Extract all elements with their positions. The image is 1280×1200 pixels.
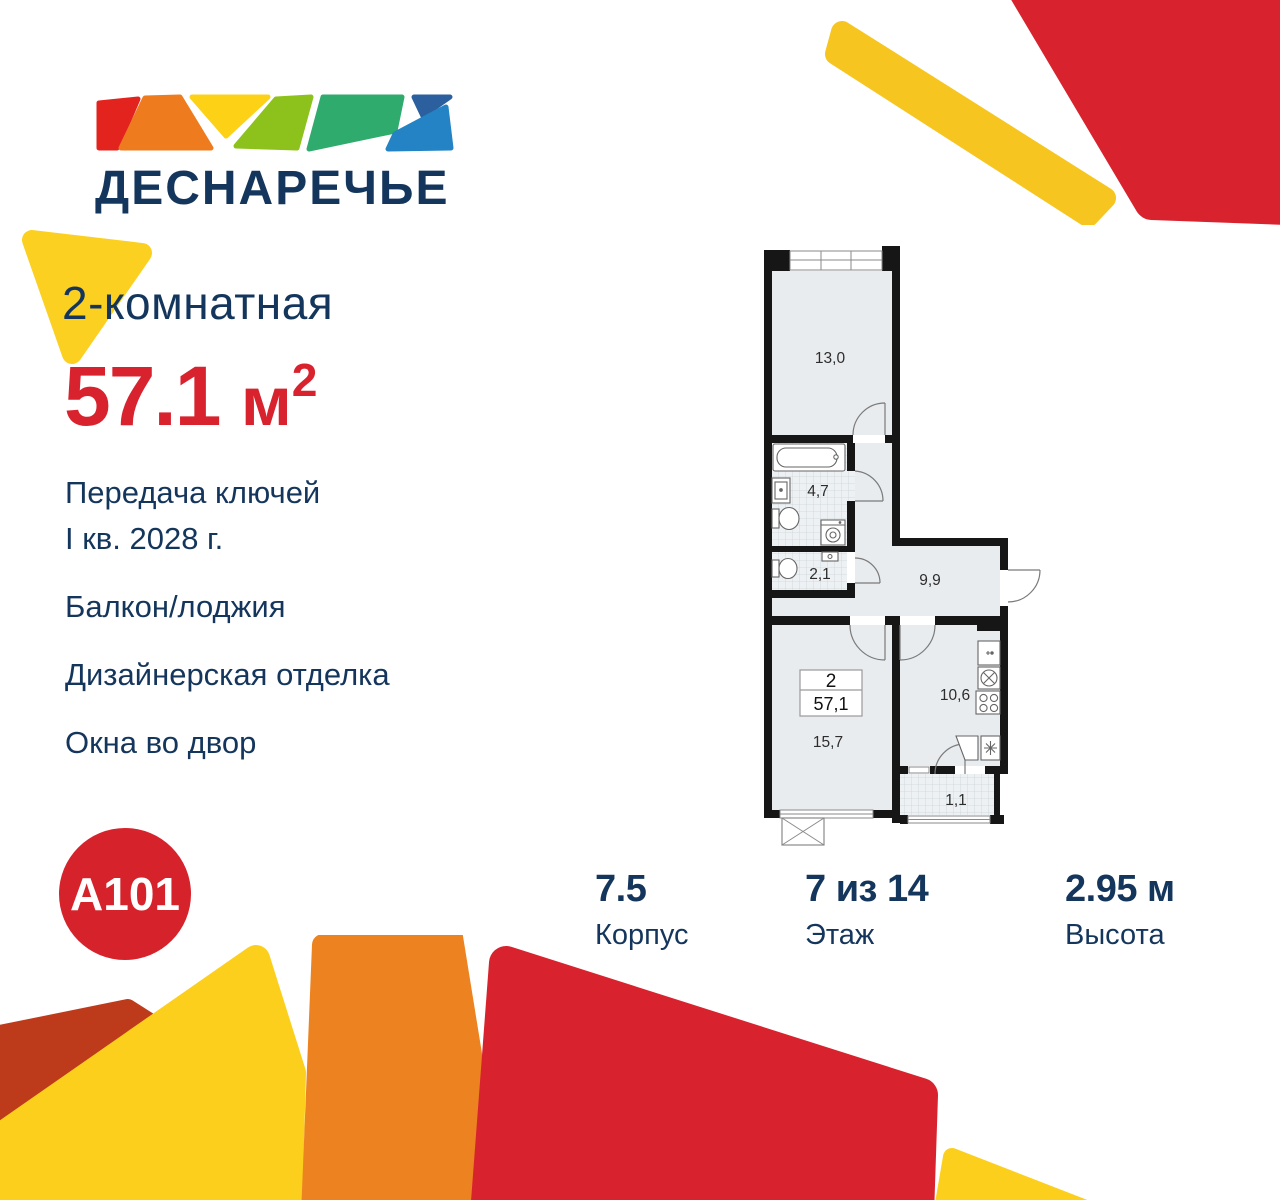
spec-floor-value: 7 из 14 — [805, 868, 928, 911]
plan-balcony-box — [782, 818, 824, 845]
kitchen-counter-icon — [978, 641, 1000, 665]
spec-building-label: Корпус — [595, 919, 689, 952]
stove-icon — [976, 691, 1000, 714]
orange-shape — [312, 937, 497, 1200]
plan-living-floor — [772, 625, 892, 810]
spec-building-value: 7.5 — [595, 868, 689, 911]
kitchen-sink-icon — [978, 667, 1000, 689]
bathtub-icon — [773, 444, 845, 471]
area-exponent: 2 — [292, 354, 318, 406]
area-value: 57.1 — [64, 349, 220, 443]
feature-courtyard-windows: Окна во двор — [65, 720, 390, 766]
feature-keys-handover: Передача ключей I кв. 2028 г. — [65, 470, 390, 562]
yellow-small-wedge-shape — [940, 1157, 1132, 1200]
developer-logo-text: А101 — [70, 867, 180, 921]
label-kitchen-area: 10,6 — [940, 687, 970, 704]
corner-decoration-bottom — [0, 935, 1280, 1200]
apartment-area: 57.1 м2 — [64, 348, 317, 445]
spec-floor-label: Этаж — [805, 919, 928, 952]
badge-area: 57,1 — [813, 694, 848, 714]
apartment-type-title: 2-комнатная — [62, 276, 333, 330]
spec-height-value: 2.95 м — [1065, 868, 1175, 911]
spec-height-label: Высота — [1065, 919, 1175, 952]
floor-plan: 2 57,1 13,0 4,7 2,1 9,9 15,7 10,6 1,1 — [750, 238, 1050, 860]
label-bedroom-area: 13,0 — [815, 350, 846, 367]
label-wc-area: 2,1 — [809, 566, 831, 583]
plan-flat-badge: 2 57,1 — [800, 670, 862, 716]
area-unit: м — [241, 363, 292, 440]
corner-decoration-top-right — [820, 0, 1280, 225]
feature-balcony: Балкон/лоджия — [65, 584, 390, 630]
project-logo-mosaic — [95, 93, 455, 153]
bathroom-sink-icon — [772, 478, 790, 503]
spec-height: 2.95 м Высота — [1065, 868, 1175, 952]
label-living-area: 15,7 — [813, 734, 843, 751]
bathroom-toilet-icon — [772, 508, 799, 530]
label-balcony-area: 1,1 — [945, 792, 967, 809]
spec-floor: 7 из 14 Этаж — [805, 868, 928, 952]
feature-design-finish: Дизайнерская отделка — [65, 652, 390, 698]
red-triangle-shape — [487, 963, 921, 1200]
apartment-card: ДЕСНАРЕЧЬЕ 2-комнатная 57.1 м2 Передача … — [0, 0, 1280, 1200]
spec-building: 7.5 Корпус — [595, 868, 689, 952]
mosaic-teal-tile — [309, 97, 402, 149]
developer-logo-a101: А101 — [59, 828, 191, 960]
badge-rooms: 2 — [826, 671, 837, 692]
features-list: Передача ключей I кв. 2028 г. Балкон/лод… — [65, 470, 390, 787]
washing-machine-icon — [821, 520, 845, 545]
label-bathroom-area: 4,7 — [807, 483, 829, 500]
project-name: ДЕСНАРЕЧЬЕ — [95, 161, 449, 216]
label-hallway-area: 9,9 — [919, 572, 941, 589]
